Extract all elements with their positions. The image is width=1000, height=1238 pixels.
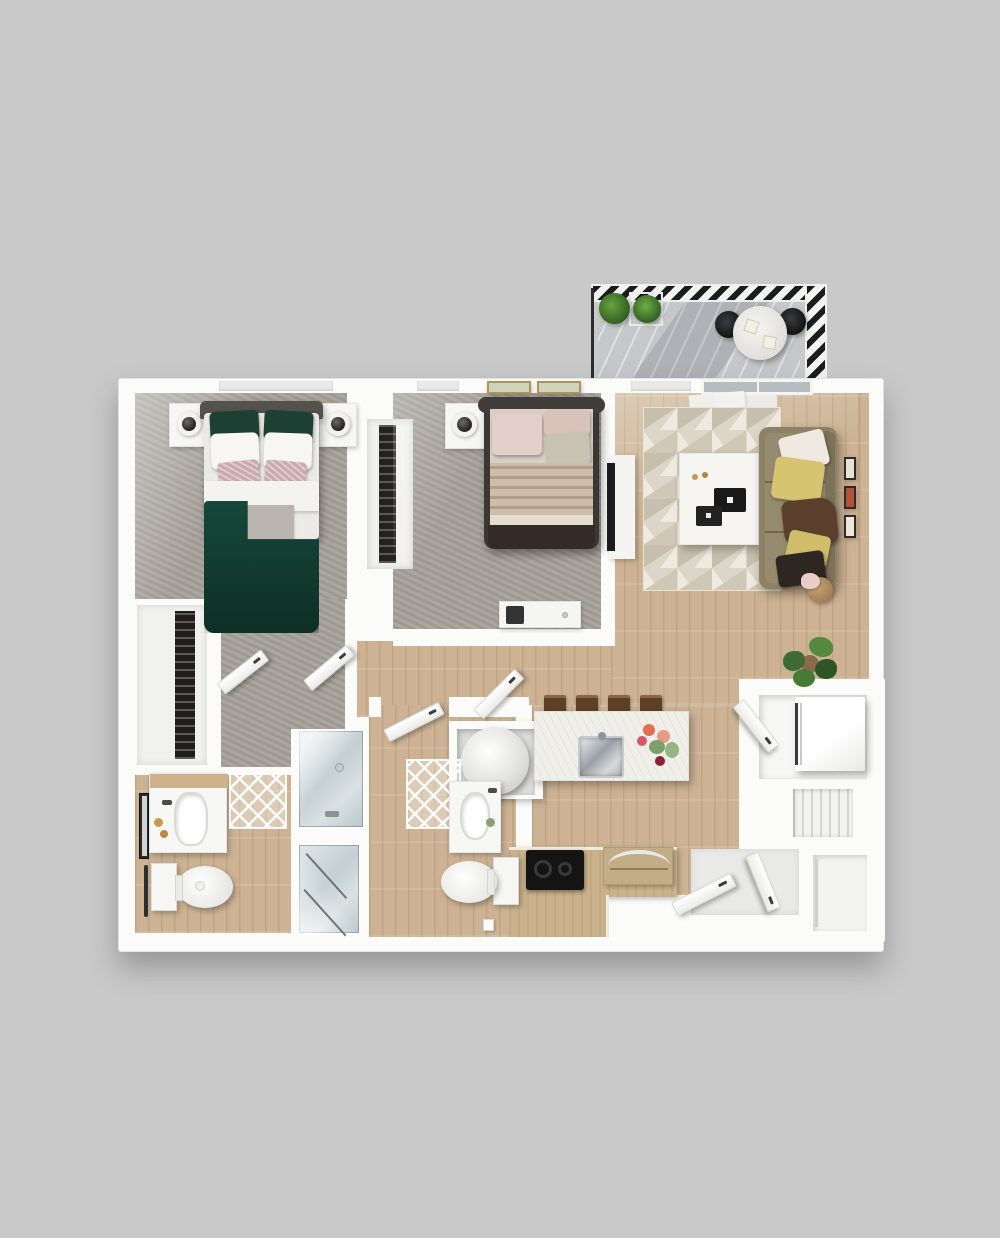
- bed2: [484, 397, 599, 549]
- kitchen-cabinet-run: [509, 895, 609, 937]
- wall: [369, 697, 381, 717]
- cooktop: [526, 850, 584, 890]
- wall: [393, 629, 601, 646]
- mirror: [139, 793, 149, 859]
- closet1-clothes: [175, 611, 195, 759]
- sofa: [759, 427, 837, 589]
- lamp-shade: [331, 417, 345, 431]
- wall-frame: [844, 457, 856, 480]
- balcony-edge-line: [591, 288, 594, 380]
- lamp-shade: [182, 417, 196, 431]
- bed2-foot: [488, 525, 595, 549]
- glass-seam: [306, 853, 347, 899]
- decor-dot: [692, 474, 698, 480]
- shower-drain: [335, 763, 344, 772]
- flush-button: [195, 881, 205, 891]
- sink-basin: [174, 792, 208, 846]
- apartment-unit: [118, 378, 884, 952]
- glass-seam: [304, 889, 347, 936]
- decor-flowers: [486, 818, 495, 827]
- toilet-tank: [151, 863, 177, 911]
- flower-arrangement: [635, 722, 683, 776]
- floorplan-image: [0, 0, 1000, 1238]
- bath-mat: [229, 773, 287, 829]
- tv: [607, 463, 615, 551]
- potted-plant: [599, 293, 630, 324]
- living-window: [631, 381, 691, 391]
- bed1: [204, 401, 319, 553]
- picture-frame: [487, 381, 531, 394]
- towel-bar: [144, 865, 148, 917]
- faucet-icon: [598, 732, 606, 740]
- pillow-sage: [545, 432, 591, 467]
- louvered-closet: [793, 789, 853, 837]
- potted-plant: [633, 295, 661, 323]
- bathroom2-toilet: [441, 857, 521, 909]
- bathroom1-vanity: [149, 773, 227, 853]
- pillow-yellow: [770, 456, 825, 505]
- coat-closet: [813, 855, 867, 931]
- bed2-blanket: [490, 463, 593, 519]
- flower-decor: [801, 573, 820, 589]
- shower-stall: [297, 843, 361, 935]
- balcony: [585, 280, 840, 384]
- dresser-knob: [562, 612, 568, 618]
- wall-frame: [844, 486, 856, 509]
- faucet-icon: [488, 788, 497, 793]
- wall: [297, 829, 365, 843]
- picture-frame: [537, 381, 581, 394]
- place-setting: [762, 335, 777, 350]
- decor-flowers: [160, 830, 168, 838]
- trash-bin: [483, 919, 494, 931]
- bistro-table: [733, 306, 787, 360]
- sink-basin: [460, 792, 490, 840]
- closet1-floor: [137, 605, 207, 765]
- bedroom1-window: [219, 381, 333, 391]
- plant: [783, 637, 837, 689]
- lamp-shade: [457, 417, 472, 432]
- coffee-table: [679, 453, 759, 545]
- living-floor-right: [859, 393, 869, 679]
- sink: [578, 736, 624, 778]
- shower-fixture-icon: [325, 811, 339, 817]
- wall-frame: [844, 515, 856, 538]
- toilet-bowl: [177, 866, 233, 908]
- pillow-pink: [492, 413, 542, 455]
- decor-dot: [702, 472, 708, 478]
- shower-stall: [297, 729, 365, 829]
- bedroom2-window: [417, 381, 459, 391]
- balcony-railing-right: [805, 284, 827, 388]
- vanity-wood-top: [150, 774, 228, 788]
- dresser-item: [506, 606, 524, 624]
- living-floor-lower: [611, 679, 741, 705]
- kitchen-island: [534, 711, 689, 781]
- faucet-icon: [162, 800, 172, 805]
- bathroom1-toilet: [151, 861, 233, 913]
- bathroom2-vanity: [449, 781, 501, 853]
- dresser: [499, 601, 581, 628]
- closet2-clothes: [379, 425, 396, 563]
- entry-floor: [691, 849, 799, 915]
- decor-flowers: [154, 818, 163, 827]
- appliance-chrome-handle: [603, 847, 673, 885]
- remote: [696, 506, 722, 526]
- laundry-closet: [759, 695, 867, 779]
- washer-dryer: [795, 697, 865, 771]
